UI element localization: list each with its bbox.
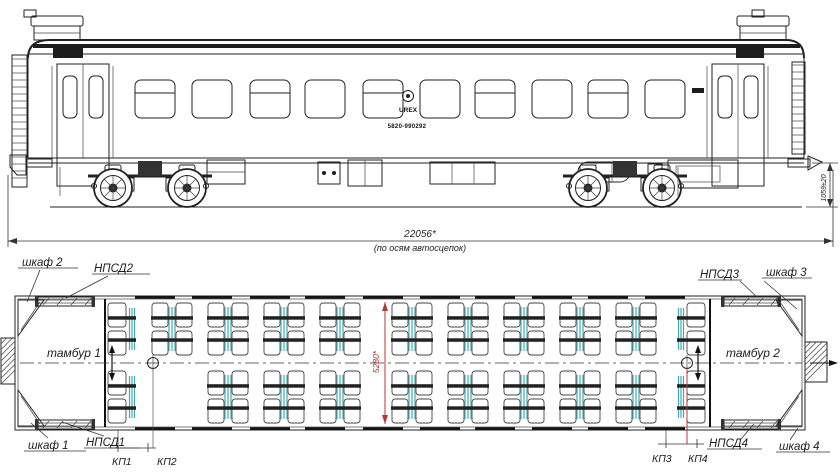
floor-plan-drawing: 5280* шкаф 2 НПСД2 НПСД3 шкаф 3 xyxy=(0,255,840,474)
label-npsd3: НПСД3 xyxy=(700,269,740,281)
seat-half-bay xyxy=(677,371,705,423)
car-window xyxy=(420,80,460,118)
coupler-left xyxy=(10,155,60,196)
end-ladder-left xyxy=(12,55,27,187)
car-window xyxy=(192,80,232,118)
length-dimension-label: 22056* xyxy=(403,229,437,240)
seat-bay xyxy=(319,371,361,423)
label-vestibule-1: тамбур 1 xyxy=(47,346,101,360)
label-kp4: КП4 xyxy=(688,453,708,465)
cabinet-2-shape xyxy=(18,300,44,336)
seat-bay xyxy=(559,371,601,423)
seat-bay xyxy=(391,303,433,355)
label-kp1: КП1 xyxy=(112,456,132,468)
seat-bay xyxy=(151,303,193,355)
seat-bay xyxy=(319,303,361,355)
seat-bay xyxy=(207,303,249,355)
label-npsd4: НПСД4 xyxy=(709,438,748,450)
label-npsd2: НПСД2 xyxy=(94,263,134,275)
door-pocket xyxy=(721,419,781,430)
seat-bay xyxy=(263,371,305,423)
vestibule-door-right xyxy=(692,64,768,186)
cabinet-1-shape xyxy=(18,390,44,426)
plan-coupler-right xyxy=(805,342,827,382)
label-npsd1: НПСД1 xyxy=(86,437,125,449)
vestibule-door-left xyxy=(52,64,113,186)
number-plate xyxy=(692,88,704,93)
label-cabinet-3: шкаф 3 xyxy=(766,267,807,279)
width-dimension-label: 5280* xyxy=(371,350,381,373)
end-marker-panel-left xyxy=(53,44,83,58)
end-marker-panel-right xyxy=(736,44,764,58)
side-elevation-drawing: UREX 5820-990292 xyxy=(0,0,840,255)
seat-bay xyxy=(559,303,601,355)
roof-outline xyxy=(28,40,804,58)
section-mark-circle-left xyxy=(148,355,159,448)
car-window xyxy=(645,80,685,118)
length-dimension-note: (по осям автосцепок) xyxy=(374,243,466,253)
seat-bay xyxy=(207,371,249,423)
seat-half-bay xyxy=(677,303,705,355)
bogies xyxy=(88,161,687,207)
car-window xyxy=(588,80,628,118)
label-kp3: КП3 xyxy=(652,453,672,465)
seat-bay xyxy=(447,371,489,423)
cabinet-3-shape xyxy=(776,300,802,336)
coupler-right xyxy=(678,156,822,196)
seat-bay xyxy=(615,371,657,423)
label-cabinet-2: шкаф 2 xyxy=(22,257,63,269)
plan-coupler-left xyxy=(1,338,15,384)
car-window xyxy=(475,80,515,118)
car-window xyxy=(250,80,290,118)
label-kp2: КП2 xyxy=(157,456,177,468)
car-window xyxy=(135,80,175,118)
door-pocket xyxy=(35,419,95,430)
roof-vent-right xyxy=(737,10,789,40)
car-window xyxy=(363,80,403,118)
label-vestibule-2: тамбур 2 xyxy=(726,346,780,360)
label-cabinet-4: шкаф 4 xyxy=(779,441,820,453)
seat-bay xyxy=(447,303,489,355)
cabinet-4-shape xyxy=(776,390,802,426)
seat-bay xyxy=(615,303,657,355)
door-pocket xyxy=(35,296,95,307)
width-dimension: 5280* xyxy=(371,302,388,424)
technical-drawing-page: UREX 5820-990292 xyxy=(0,0,840,474)
seat-bay xyxy=(263,303,305,355)
underframe-box xyxy=(318,162,340,184)
seat-bay xyxy=(503,371,545,423)
operator-logo: UREX xyxy=(399,91,418,115)
label-cabinet-1: шкаф 1 xyxy=(28,440,69,452)
seat-bay xyxy=(391,371,433,423)
end-ladder-right xyxy=(792,62,805,154)
door-pocket xyxy=(721,296,781,307)
bogie xyxy=(88,161,212,207)
seat-bay xyxy=(503,303,545,355)
coupler-height-dimension-label: 1059±20 xyxy=(821,174,828,201)
logo-text: UREX xyxy=(399,107,418,114)
car-number: 5820-990292 xyxy=(388,124,427,130)
roof-vent-left xyxy=(24,10,83,40)
car-window xyxy=(305,80,345,118)
car-window xyxy=(532,80,572,118)
underframe-box xyxy=(430,162,495,184)
